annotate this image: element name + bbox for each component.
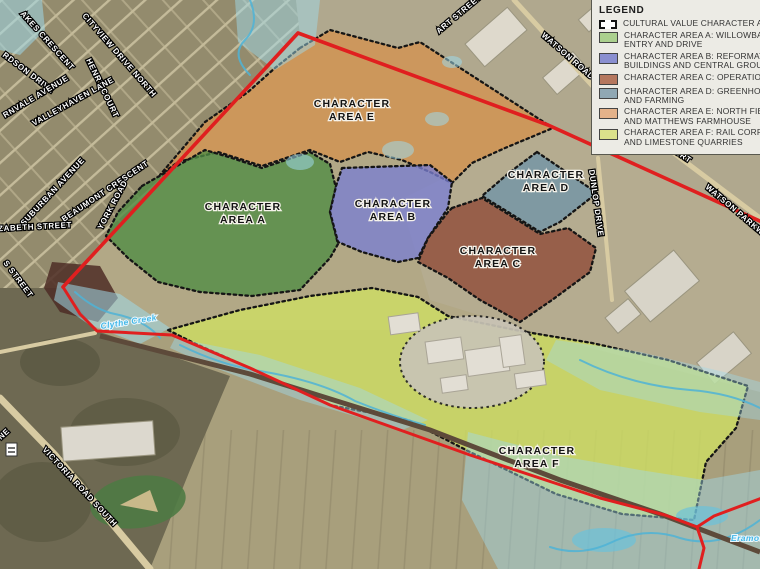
area-b-swatch xyxy=(599,53,618,64)
svg-text:AREA D: AREA D xyxy=(523,182,569,194)
legend-item-area-e: CHARACTER AREA E: NORTH FIELDS AND MATTH… xyxy=(599,107,760,126)
legend-title: LEGEND xyxy=(599,5,760,16)
area-d-swatch xyxy=(599,88,618,99)
dashed-boundary-swatch xyxy=(599,20,617,29)
svg-text:AREA C: AREA C xyxy=(475,258,521,270)
svg-text:AREA F: AREA F xyxy=(514,458,559,470)
legend-item-cultural-value: CULTURAL VALUE CHARACTER AREA xyxy=(599,19,760,29)
area-a-swatch xyxy=(599,32,618,43)
area-c-swatch xyxy=(599,74,618,85)
legend-item-area-b: CHARACTER AREA B: REFORMATORY BUILDINGS … xyxy=(599,52,760,71)
svg-text:CHARACTER: CHARACTER xyxy=(205,201,281,213)
legend-item-area-a: CHARACTER AREA A: WILLOWBANK ENTRY AND D… xyxy=(599,31,760,50)
warehouse-building xyxy=(61,421,155,461)
river-label: Eramosa xyxy=(731,533,760,543)
area-e-swatch xyxy=(599,108,618,119)
legend-item-area-d: CHARACTER AREA D: GREENHOUSE AND FARMING xyxy=(599,87,760,106)
road-shield-icon xyxy=(6,443,17,456)
svg-text:CHARACTER: CHARACTER xyxy=(460,245,536,257)
svg-text:AREA B: AREA B xyxy=(370,211,416,223)
legend-item-area-c: CHARACTER AREA C: OPERATIONS xyxy=(599,73,760,85)
site-plan-map: AKES CRESCENT RDSON DRIVE CITYVIEW DRIVE… xyxy=(0,0,760,569)
svg-text:AREA E: AREA E xyxy=(329,111,375,123)
svg-text:CHARACTER: CHARACTER xyxy=(355,198,431,210)
svg-text:CHARACTER: CHARACTER xyxy=(508,169,584,181)
area-f-swatch xyxy=(599,129,618,140)
svg-text:CHARACTER: CHARACTER xyxy=(499,445,575,457)
svg-text:CHARACTER: CHARACTER xyxy=(314,98,390,110)
svg-text:AREA A: AREA A xyxy=(220,214,266,226)
legend-panel: LEGEND CULTURAL VALUE CHARACTER AREA CHA… xyxy=(591,0,760,155)
legend-item-area-f: CHARACTER AREA F: RAIL CORRIDOR AND LIME… xyxy=(599,128,760,147)
